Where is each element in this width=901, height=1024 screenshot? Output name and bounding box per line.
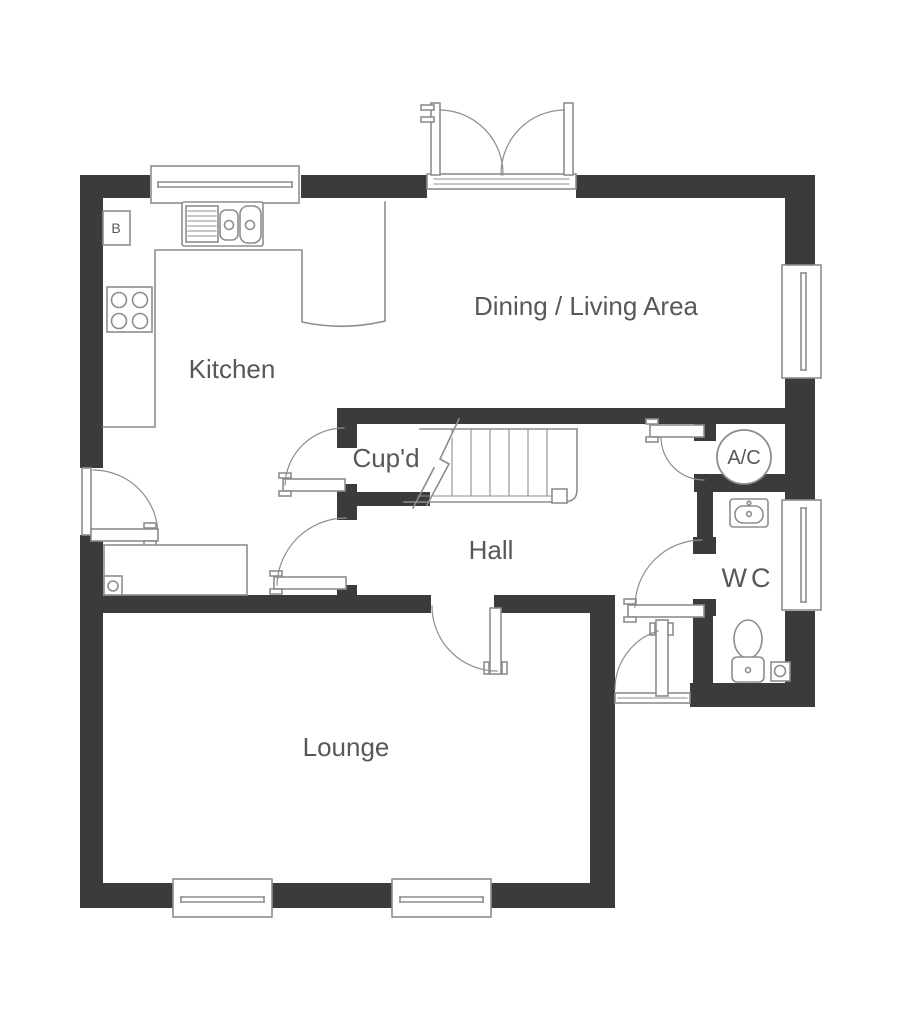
hinge-mark (646, 437, 658, 442)
lounge-door (432, 606, 507, 674)
wall-wc-post-top (693, 537, 716, 554)
wc-basin (730, 499, 768, 527)
stairs-break-line (427, 419, 459, 505)
room-labels: Kitchen Dining / Living Area Cup'd Hall … (111, 220, 774, 762)
french-doors (421, 103, 576, 189)
cupboard-door (279, 428, 345, 496)
hall-storage (104, 545, 247, 595)
wall-bottom-2 (272, 883, 392, 908)
hinge-mark (646, 419, 658, 424)
hinge-mark (484, 662, 489, 674)
wall-wc-bottom (690, 683, 815, 707)
wall-top-right (576, 175, 815, 198)
wall-bottom-1 (80, 883, 173, 908)
label-hall: Hall (469, 535, 514, 565)
hinge-mark (624, 599, 636, 604)
extractor-fan (771, 662, 790, 681)
wall-wc-upper (697, 492, 713, 538)
hinge-mark (270, 589, 282, 594)
wall-lounge-right (590, 595, 615, 908)
wall-top-mid (301, 175, 427, 198)
rear-door (615, 620, 690, 703)
label-boiler: B (111, 220, 120, 236)
wall-lounge-top-2 (494, 595, 615, 613)
wall-right-2 (785, 378, 815, 501)
hinge-mark (502, 662, 507, 674)
label-lounge: Lounge (303, 732, 390, 762)
meter-box (104, 576, 122, 595)
hob (107, 287, 152, 332)
stairs-newel (552, 489, 567, 503)
entrance-door (82, 468, 158, 546)
hinge-mark (624, 617, 636, 622)
walls (80, 175, 815, 908)
wall-left-lower (80, 535, 103, 908)
wall-hall-top (337, 408, 785, 424)
wall-right-1 (785, 175, 815, 265)
wall-left-upper (80, 175, 103, 468)
label-dining-living: Dining / Living Area (474, 291, 699, 321)
wc-door (624, 540, 704, 622)
ac-door (646, 419, 704, 480)
label-wc: WC (722, 563, 775, 593)
hinge-mark (279, 491, 291, 496)
hinge-mark (421, 105, 434, 110)
wall-wc-lower (693, 616, 713, 683)
floor-plan: Kitchen Dining / Living Area Cup'd Hall … (0, 0, 901, 1024)
hinge-mark (421, 117, 434, 122)
wc-window (782, 500, 821, 610)
hinge-mark (144, 523, 156, 528)
hinge-mark (668, 623, 673, 635)
kitchen-sink (182, 202, 263, 246)
dining-window (782, 265, 821, 378)
kitchen-hall-door (270, 518, 346, 594)
label-ac: A/C (727, 447, 760, 469)
toilet (732, 620, 764, 682)
lounge-window-2 (392, 879, 491, 917)
label-cupboard: Cup'd (352, 443, 419, 473)
wall-lounge-top-1 (103, 595, 431, 613)
lounge-window-1 (173, 879, 272, 917)
hinge-mark (279, 473, 291, 478)
label-kitchen: Kitchen (189, 354, 276, 384)
hinge-mark (270, 571, 282, 576)
kitchen-window (151, 166, 299, 203)
